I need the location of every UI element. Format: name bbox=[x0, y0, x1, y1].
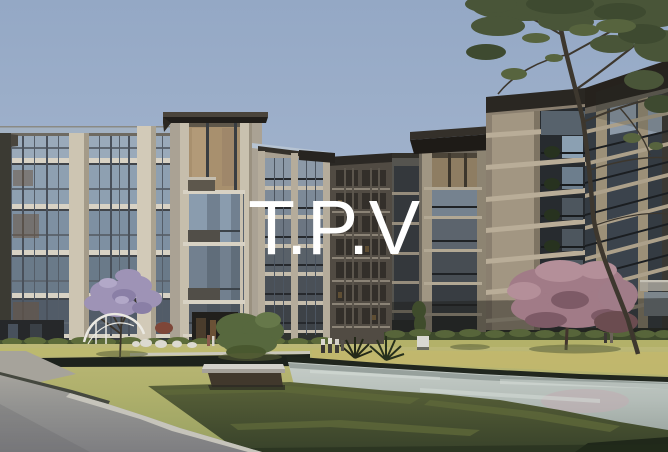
svg-text:T.P.V: T.P.V bbox=[248, 185, 421, 271]
